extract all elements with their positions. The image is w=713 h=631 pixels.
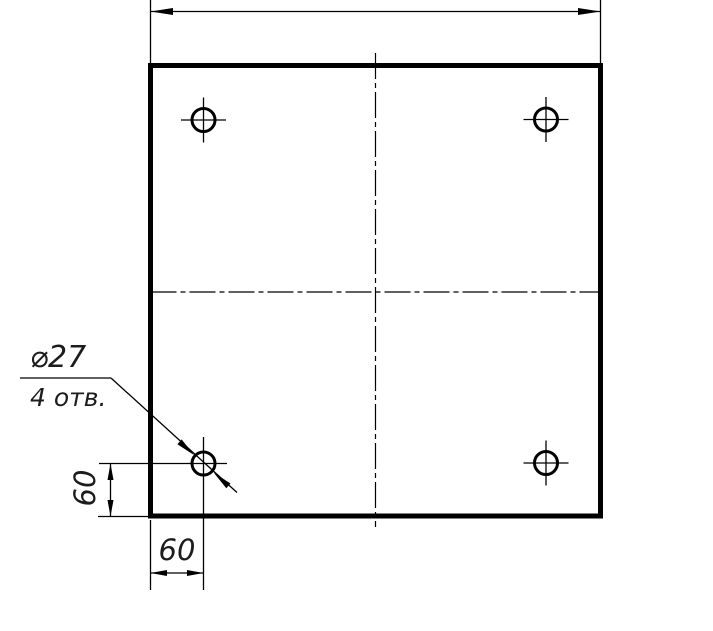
hole-count-label: 4 отв. xyxy=(30,383,106,412)
hole-top-right xyxy=(524,97,569,142)
arrowhead-left-icon xyxy=(151,8,174,15)
dimension-60-horizontal: 60 xyxy=(151,520,204,590)
leader-callout: ⌀27 4 отв. xyxy=(20,340,237,493)
arrowhead-up-icon xyxy=(108,464,114,481)
plate-drawing: ⌀27 4 отв. 60 60 xyxy=(0,0,713,631)
leader-arrowhead-icon xyxy=(177,439,194,455)
hole-bottom-right xyxy=(524,441,569,486)
leader-arrowhead-opposite-icon xyxy=(214,473,231,489)
arrowhead-left-icon xyxy=(151,570,168,576)
dimension-60-vertical: 60 xyxy=(68,464,150,517)
diameter-label: ⌀27 xyxy=(30,340,86,375)
drawing-canvas: ⌀27 4 отв. 60 60 xyxy=(0,0,713,631)
leader-line xyxy=(111,378,237,493)
dimension-60-vertical-label: 60 xyxy=(68,470,102,507)
dimension-60-horizontal-label: 60 xyxy=(159,533,196,567)
hole-top-left xyxy=(181,98,226,143)
arrowhead-right-icon xyxy=(578,8,601,15)
arrowhead-right-icon xyxy=(187,570,204,576)
arrowhead-down-icon xyxy=(108,500,114,517)
